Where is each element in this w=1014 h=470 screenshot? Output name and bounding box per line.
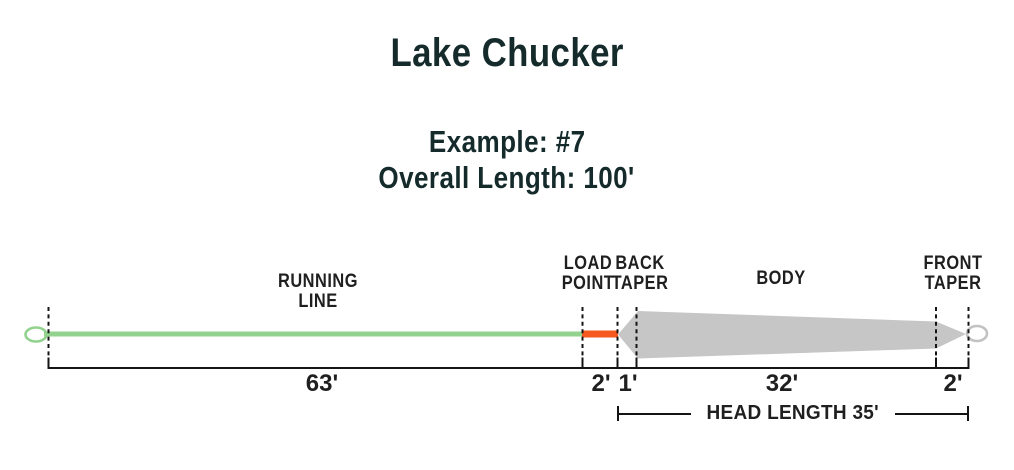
front-welded-loop-icon	[967, 326, 987, 341]
front-taper-label-line2: TAPER	[924, 273, 983, 293]
front-taper-label-line1: FRONT	[924, 253, 983, 273]
load-point-label-line2: POINT	[562, 273, 615, 293]
fly-line-taper-diagram: Lake Chucker Example: #7 Overall Length:…	[0, 0, 1014, 470]
body-label-line1: BODY	[756, 268, 805, 288]
back-taper-label-line2: TAPER	[612, 273, 669, 293]
head-length-label: HEAD LENGTH 35'	[696, 402, 889, 425]
head-length-bracket: HEAD LENGTH 35'	[617, 405, 969, 422]
back-taper-length: 1'	[618, 372, 637, 396]
running-line-length: 63'	[306, 372, 338, 396]
taper-profile-graphic	[0, 0, 1014, 470]
front-taper-label: FRONT TAPER	[924, 253, 983, 293]
body-label: BODY	[756, 268, 805, 288]
running-line-label-line2: LINE	[278, 291, 358, 311]
scale-bar	[48, 358, 969, 370]
back-taper-label-line1: BACK	[612, 253, 669, 273]
head-bracket-left-line	[619, 413, 691, 415]
head-bracket-right-line	[895, 413, 967, 415]
load-point-label: LOAD POINT	[562, 253, 615, 293]
head-bracket-right-tick	[967, 406, 969, 421]
front-taper-length: 2'	[943, 372, 962, 396]
running-line-segment	[44, 332, 583, 337]
back-taper-label: BACK TAPER	[612, 253, 669, 293]
body-length: 32'	[766, 372, 798, 396]
head-shape	[618, 311, 966, 359]
load-point-length: 2'	[591, 372, 610, 396]
load-point-segment	[582, 331, 618, 338]
running-line-label: RUNNING LINE	[278, 271, 358, 311]
rear-welded-loop-icon	[26, 328, 47, 342]
load-point-label-line1: LOAD	[562, 253, 615, 273]
running-line-label-line1: RUNNING	[278, 271, 358, 291]
